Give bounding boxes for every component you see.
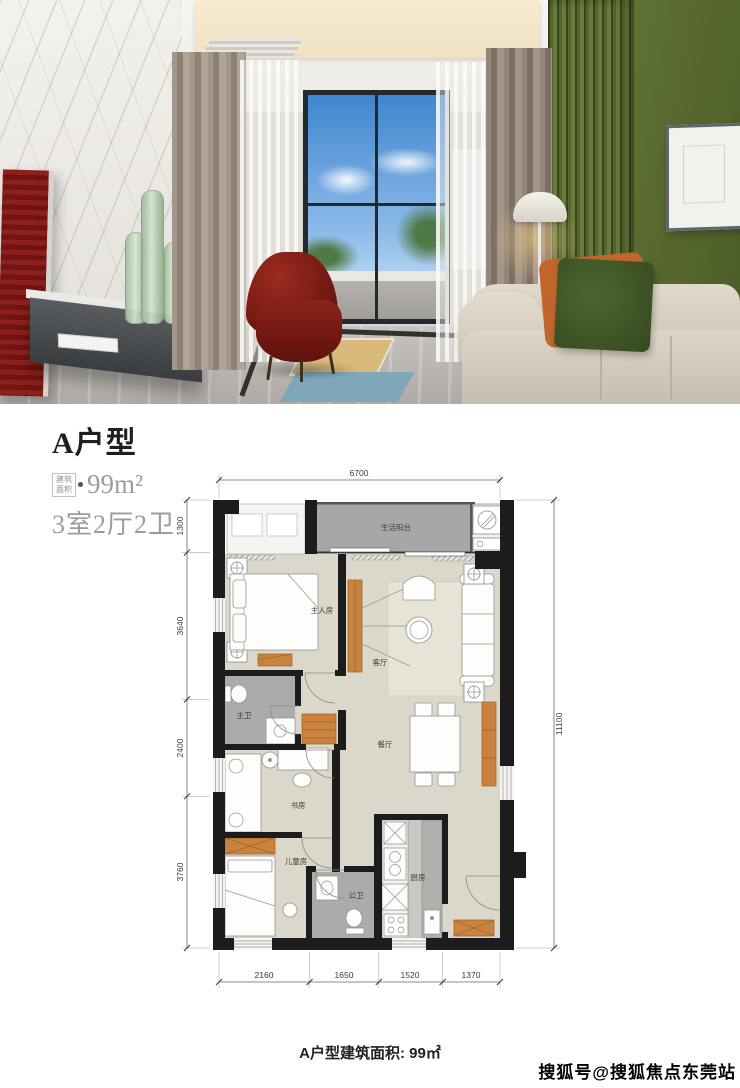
title-block: A户型 建筑 面积 99m² 3室2厅2卫 (52, 418, 175, 541)
label-kitchen: 厨房 (411, 872, 426, 882)
washing-machine (472, 504, 502, 552)
wall-art-frame (666, 123, 740, 232)
sofa-seam (670, 336, 672, 400)
armchair-leg (300, 360, 303, 382)
dining-furniture (410, 702, 496, 786)
wall-art-matting (683, 144, 725, 203)
hero-photo (0, 0, 740, 404)
area-badge-line1: 建筑 (53, 475, 75, 484)
area-line: 建筑 面积 99m² (52, 469, 175, 500)
glass-vase (141, 190, 164, 324)
label-living: 客厅 (373, 657, 388, 667)
watermark: 搜狐号@搜狐焦点东莞站 (538, 1058, 736, 1083)
area-badge: 建筑 面积 (52, 473, 76, 497)
badge-dot (78, 482, 83, 487)
dim-left-3: 2400 (175, 738, 185, 757)
dim-bottom-1: 2160 (255, 970, 274, 980)
curtain-left (172, 52, 246, 370)
entry-shoe-cabinet (454, 920, 494, 936)
dim-right: 11100 (554, 713, 564, 736)
window-mullion-vertical (375, 95, 378, 319)
floorplan: 6700 1300 3640 2400 3760 11100 (170, 458, 580, 1018)
area-value: 99m² (87, 469, 143, 500)
label-public-bath: 公卫 (349, 891, 364, 900)
dim-bottom-3: 1520 (401, 970, 420, 980)
dim-bottom-4: 1370 (462, 970, 481, 980)
label-kids: 儿童房 (285, 856, 308, 866)
plan-title: A户型 (52, 418, 175, 462)
dim-bottom-2: 1650 (335, 970, 354, 980)
master-bed (227, 558, 318, 666)
rooms-line: 3室2厅2卫 (52, 504, 175, 541)
label-balcony: 生活阳台 (381, 522, 411, 532)
pillow-green (554, 258, 655, 353)
label-master-bedroom: 主人房 (311, 605, 334, 615)
dim-left-2: 3640 (175, 616, 185, 635)
label-master-bath: 主卫 (237, 710, 252, 720)
dim-top: 6700 (350, 468, 369, 478)
area-badge-line2: 面积 (53, 485, 75, 494)
window-mullion-horizontal (308, 203, 445, 206)
label-study: 书房 (291, 800, 306, 810)
dim-left-1: 1300 (175, 516, 185, 535)
page: A户型 建筑 面积 99m² 3室2厅2卫 (0, 0, 740, 1088)
label-dining: 餐厅 (378, 740, 393, 749)
dim-left-4: 3760 (175, 862, 185, 881)
